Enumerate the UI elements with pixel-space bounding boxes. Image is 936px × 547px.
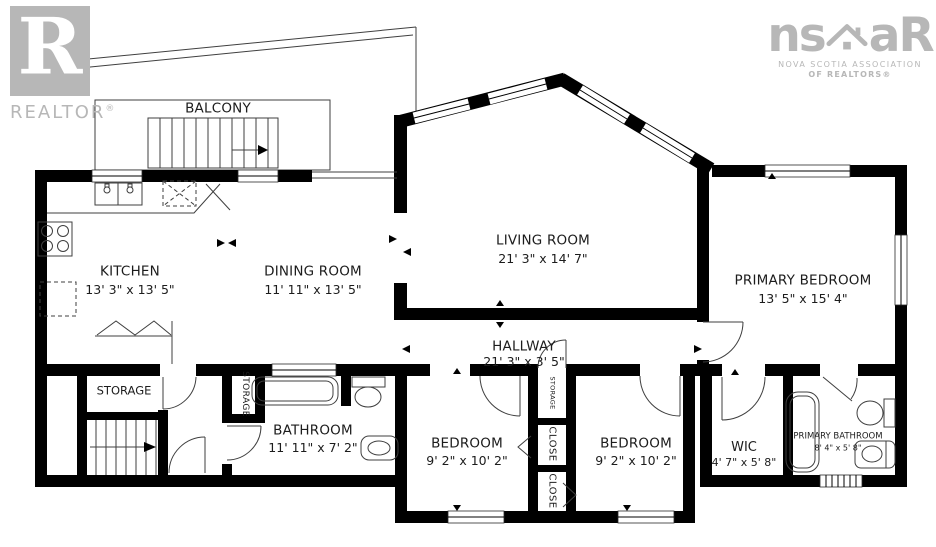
vanity-sink-icon [361, 436, 398, 460]
bathroom-label: BATHROOM [273, 424, 353, 439]
dishwasher-icon [163, 181, 196, 206]
closet-lower-label: CLOSE [547, 473, 558, 508]
hallway-label: HALLWAY [492, 340, 556, 355]
basement-stairs [90, 420, 156, 475]
double-sink-icon [95, 183, 142, 205]
primary-bathroom-label: PRIMARY BATHROOM [793, 432, 882, 441]
hallway-dims: 21' 3" x 3' 5" [483, 355, 564, 369]
wic-label: WIC [731, 441, 757, 455]
primary-bedroom-dims: 13' 5" x 15' 4" [758, 292, 847, 306]
house-icon [826, 20, 868, 56]
nsar-logo: ns aR NOVA SCOTIA ASSOCIATION OF REALTOR… [766, 16, 934, 79]
dining-room-dims: 11' 11" x 13' 5" [264, 283, 361, 297]
dining-room-label: DINING ROOM [264, 265, 362, 280]
primary-bedroom-label: PRIMARY BEDROOM [735, 274, 872, 289]
living-room-dims: 21' 3" x 14' 7" [498, 252, 587, 266]
primary-toilet-icon [857, 399, 895, 427]
nsar-wordmark: ns aR [766, 16, 934, 56]
primary-bathroom-dims: 8' 4" x 5' 8" [814, 445, 861, 454]
living-room-label: LIVING ROOM [496, 234, 590, 249]
kitchen-dims: 13' 3" x 13' 5" [85, 283, 174, 297]
kitchen-label: KITCHEN [100, 265, 160, 280]
realtor-wordmark: REALTOR® [10, 102, 120, 123]
floor-plan-page: BALCONY KITCHEN 13' 3" x 13' 5" DINING R… [0, 0, 936, 547]
nsar-line1: NOVA SCOTIA ASSOCIATION [766, 60, 934, 69]
bedroom-left-dims: 9' 2" x 10' 2" [426, 454, 507, 468]
balcony-label: BALCONY [185, 102, 251, 117]
bathroom-dims: 11' 11" x 7' 2" [268, 441, 357, 455]
bedroom-left-label: BEDROOM [431, 437, 503, 452]
bifold-doors-icon [95, 321, 172, 364]
realtor-r-icon: R [10, 6, 90, 96]
bedroom-right-label: BEDROOM [600, 437, 672, 452]
toilet-icon [352, 377, 385, 407]
closet-upper-label: CLOSE [547, 426, 558, 461]
realtor-logo: R REALTOR® [10, 6, 120, 123]
wic-dims: 4' 7" x 5' 8" [712, 457, 777, 469]
counter-line [47, 184, 220, 213]
pantry-door-leaf [206, 184, 230, 210]
bedroom-right-dims: 9' 2" x 10' 2" [595, 454, 676, 468]
storage-closet-label: STORAGE [239, 371, 249, 417]
nsar-line2: OF REALTORS® [766, 70, 934, 79]
storage-room-label: STORAGE [97, 385, 152, 398]
hall-storage-label: STORAGE [548, 376, 555, 409]
